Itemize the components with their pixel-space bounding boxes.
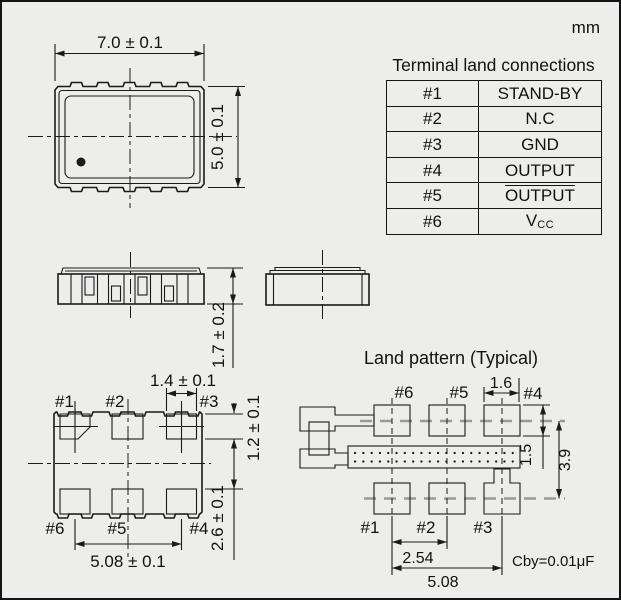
pad-label-5: #5 bbox=[108, 519, 127, 538]
overlined-output-label: OUTPUT bbox=[505, 186, 575, 205]
end-view-body bbox=[266, 274, 369, 305]
pad-label-4: #4 bbox=[190, 519, 209, 538]
table-row: #4 OUTPUT bbox=[387, 157, 602, 183]
terminal-connections-table: #1 STAND-BY #2 N.C #3 GND #4 OUTPUT #5 O… bbox=[386, 80, 602, 235]
bottom-view: #1 #2 #3 #6 #5 #4 1.4 ± 0.1 5.08 ± 0.1 1… bbox=[28, 371, 263, 571]
function-cell: OUTPUT bbox=[479, 157, 602, 183]
land-pattern: Land pattern (Typical) bbox=[300, 348, 594, 591]
function-cell: N.C bbox=[479, 106, 602, 132]
function-cell: OUTPUT bbox=[479, 183, 602, 209]
side-view-castellations bbox=[71, 274, 188, 304]
datasheet-drawing-page: 7.0 ± 0.1 5.0 ± 0.1 bbox=[0, 0, 621, 600]
pin-cell: #6 bbox=[387, 208, 479, 234]
pin-cell: #4 bbox=[387, 157, 479, 183]
table-row: #3 GND bbox=[387, 132, 602, 158]
land-pad-span-dim: 5.08 bbox=[427, 574, 458, 591]
land-row-spacing-dim: 3.9 bbox=[557, 449, 574, 471]
pin1-index-dot bbox=[77, 158, 86, 167]
pad-label-3: #3 bbox=[200, 392, 219, 411]
terminal-connections-title: Terminal land connections bbox=[384, 55, 603, 76]
bypass-capacitor-note: Cby=0.01μF bbox=[512, 553, 594, 570]
units-label: mm bbox=[540, 18, 600, 38]
land-pattern-title: Land pattern (Typical) bbox=[364, 348, 538, 368]
pin-cell: #5 bbox=[387, 183, 479, 209]
land-pad-width-dim: 1.6 bbox=[490, 375, 512, 392]
ground-strip bbox=[348, 446, 520, 468]
table-row: #5 OUTPUT bbox=[387, 183, 602, 209]
vcc-subscript: CC bbox=[537, 219, 554, 231]
pad-label-1: #1 bbox=[55, 392, 74, 411]
table-row: #6 VCC bbox=[387, 208, 602, 234]
bottom-view-pad-span-dim: 5.08 ± 0.1 bbox=[90, 552, 166, 571]
land-column-centerlines bbox=[392, 398, 502, 575]
pad-label-2: #2 bbox=[106, 392, 125, 411]
land-pad-pitch-dim: 2.54 bbox=[402, 550, 433, 567]
vcc-label: V bbox=[526, 211, 537, 230]
land-pad-height-dim: 1.5 bbox=[518, 444, 535, 466]
table-row: #2 N.C bbox=[387, 106, 602, 132]
function-cell: GND bbox=[479, 132, 602, 158]
top-view-height-dim: 5.0 ± 0.1 bbox=[208, 104, 227, 170]
bottom-view-pad-length-dim: 1.2 ± 0.1 bbox=[244, 395, 263, 461]
end-side-view bbox=[266, 250, 369, 319]
top-view: 7.0 ± 0.1 5.0 ± 0.1 bbox=[28, 33, 245, 208]
land-label-4: #4 bbox=[524, 384, 543, 403]
top-view-width-dim: 7.0 ± 0.1 bbox=[97, 33, 163, 52]
end-view-lid bbox=[270, 268, 365, 275]
land-label-1: #1 bbox=[361, 518, 380, 537]
front-side-view: 1.7 ± 0.2 bbox=[58, 252, 243, 368]
side-view-thickness-dim: 1.7 ± 0.2 bbox=[209, 302, 228, 368]
land-label-6: #6 bbox=[395, 383, 414, 402]
pin-cell: #3 bbox=[387, 132, 479, 158]
function-cell: STAND-BY bbox=[479, 81, 602, 107]
table-row: #1 STAND-BY bbox=[387, 81, 602, 107]
pin-cell: #2 bbox=[387, 106, 479, 132]
function-cell: VCC bbox=[479, 208, 602, 234]
bottom-view-pad-width-dim: 1.4 ± 0.1 bbox=[150, 371, 216, 390]
bottom-view-pad-gap-dim: 2.6 ± 0.1 bbox=[208, 485, 227, 551]
capacitor-body bbox=[309, 422, 329, 455]
pad-label-6: #6 bbox=[46, 519, 65, 538]
land-label-3: #3 bbox=[474, 518, 493, 537]
pin-cell: #1 bbox=[387, 81, 479, 107]
land-label-5: #5 bbox=[450, 383, 469, 402]
land-label-2: #2 bbox=[417, 518, 436, 537]
bypass-capacitor bbox=[300, 407, 374, 468]
